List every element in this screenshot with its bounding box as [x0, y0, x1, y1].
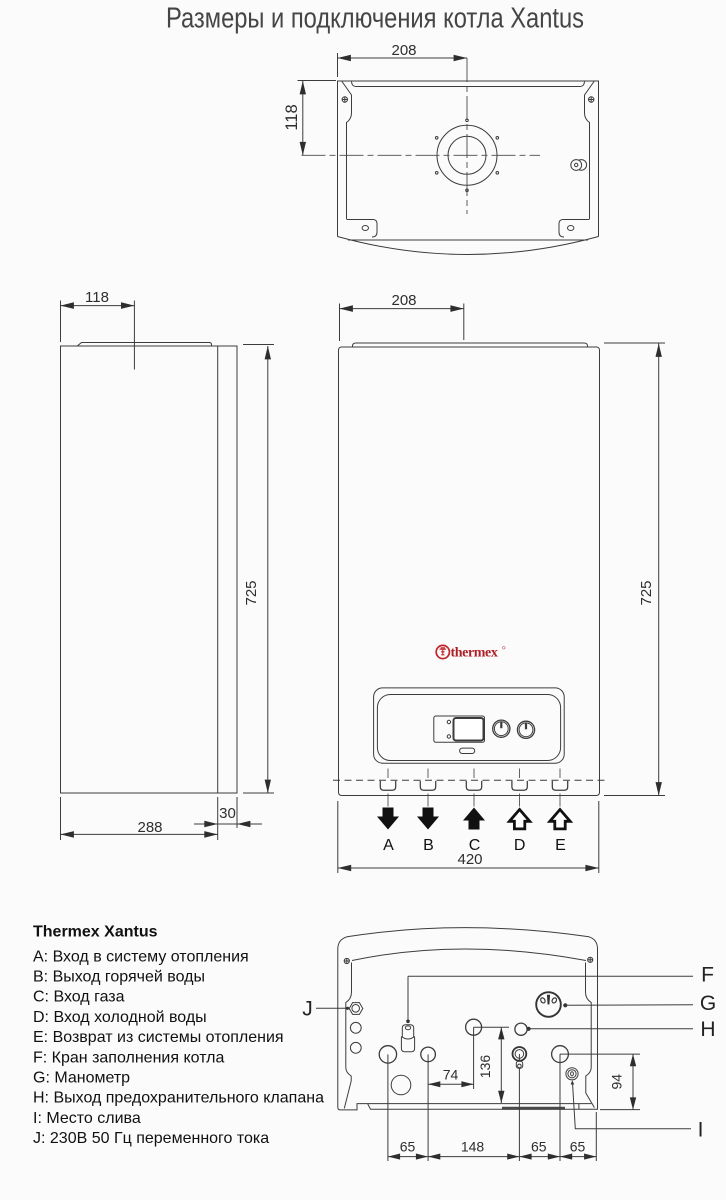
- svg-text:118: 118: [85, 289, 109, 306]
- svg-text:725: 725: [638, 580, 655, 605]
- svg-text:30: 30: [219, 805, 236, 822]
- svg-text:J: 230В 50 Гц переменного тока: J: 230В 50 Гц переменного тока: [33, 1130, 269, 1147]
- svg-text:288: 288: [137, 819, 162, 836]
- svg-text:Thermex Xantus: Thermex Xantus: [33, 924, 158, 941]
- svg-text:G: Манометр: G: Манометр: [33, 1070, 130, 1087]
- svg-text:208: 208: [391, 292, 416, 309]
- svg-text:J: J: [302, 998, 313, 1021]
- svg-text:118: 118: [283, 104, 301, 130]
- svg-text:65: 65: [400, 1139, 416, 1155]
- svg-text:H: Выход предохранительного кл: H: Выход предохранительного клапана: [33, 1090, 324, 1107]
- svg-text:D: D: [514, 837, 526, 854]
- svg-text:94: 94: [609, 1074, 625, 1090]
- svg-text:148: 148: [461, 1139, 485, 1155]
- svg-text:B: B: [423, 837, 434, 854]
- svg-text:A: Вход в систему отопления: A: Вход в систему отопления: [33, 948, 249, 965]
- svg-text:I: I: [698, 1119, 704, 1142]
- svg-text:thermex: thermex: [451, 646, 498, 661]
- svg-text:H: H: [700, 1018, 715, 1041]
- svg-text:G: G: [700, 992, 716, 1015]
- svg-text:74: 74: [443, 1067, 459, 1083]
- svg-text:E: E: [555, 837, 566, 854]
- svg-text:E: Возврат из системы отоплени: E: Возврат из системы отопления: [33, 1029, 284, 1046]
- svg-text:65: 65: [531, 1139, 547, 1155]
- svg-text:D: Вход холодной воды: D: Вход холодной воды: [33, 1009, 207, 1026]
- svg-text:65: 65: [570, 1139, 586, 1155]
- svg-text:F: F: [701, 964, 714, 987]
- svg-text:Размеры и подключения котла Xa: Размеры и подключения котла Xantus: [166, 3, 584, 35]
- svg-text:B: Выход горячей воды: B: Выход горячей воды: [33, 969, 205, 986]
- svg-text:208: 208: [391, 42, 416, 59]
- svg-text:420: 420: [457, 851, 482, 868]
- svg-text:136: 136: [477, 1055, 493, 1079]
- svg-text:C: Вход газа: C: Вход газа: [33, 989, 125, 1006]
- svg-text:A: A: [383, 837, 394, 854]
- svg-text:725: 725: [243, 580, 260, 605]
- svg-text:F: Кран заполнения котла: F: Кран заполнения котла: [33, 1049, 225, 1066]
- svg-text:I: Место слива: I: Место слива: [33, 1110, 141, 1127]
